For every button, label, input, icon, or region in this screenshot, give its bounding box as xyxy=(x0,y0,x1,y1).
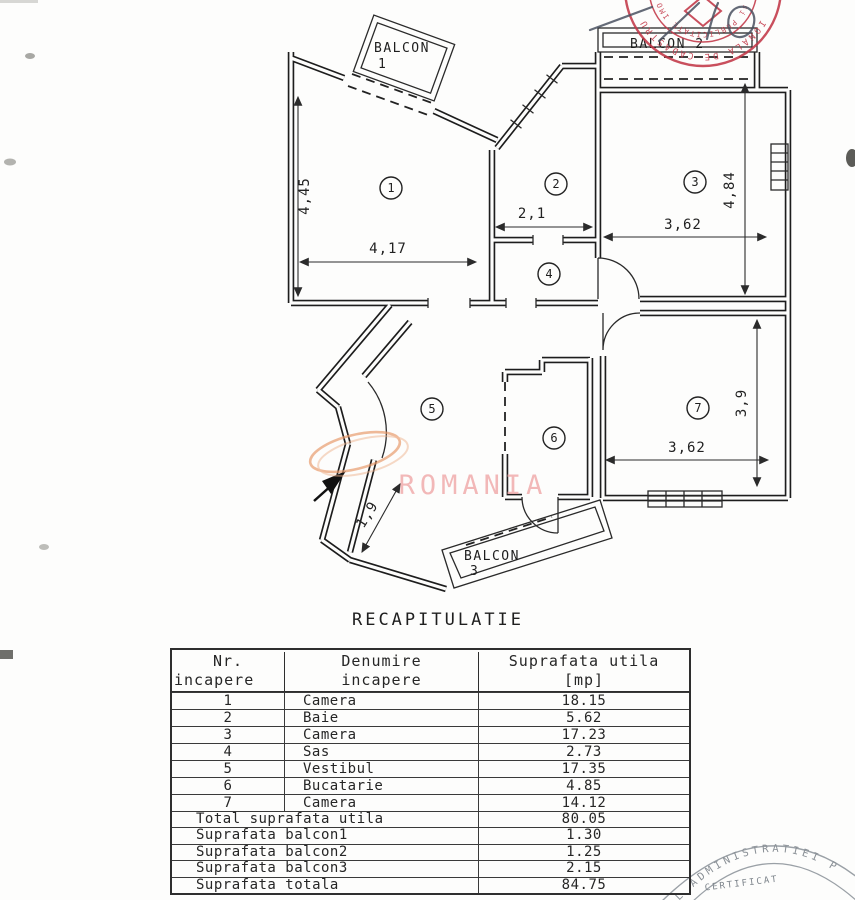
table-summary-row: Total suprafata utila 80.05 xyxy=(172,811,689,827)
door-jambs xyxy=(428,235,563,308)
dim-room7-width: 3,62 xyxy=(668,440,706,456)
room-4-number: 4 xyxy=(545,267,552,281)
balcony-1-number: 1 xyxy=(378,57,387,72)
recap-table: Nr. incapere Denumire incapere Suprafata… xyxy=(170,648,691,895)
room-2-number: 2 xyxy=(552,177,559,191)
dim-room1-width: 4,17 xyxy=(369,241,407,257)
room-1-number: 1 xyxy=(387,181,394,195)
room-7-number: 7 xyxy=(694,401,701,415)
scanned-floor-plan-document: 4,45 4,17 2,1 3,62 4,84 3,62 3,9 1,9 1 2… xyxy=(0,0,855,900)
table-summary-row: Suprafata totala 84.75 xyxy=(172,877,689,893)
dim-room2-width: 2,1 xyxy=(518,206,546,222)
dim-room1-height: 4,45 xyxy=(297,177,313,215)
table-summary-row: Suprafata balcon2 1.25 xyxy=(172,844,689,860)
stamp-emblem-icon xyxy=(685,0,721,26)
table-row: 7 Camera 14.12 xyxy=(172,794,689,811)
table-summary-row: Suprafata balcon1 1.30 xyxy=(172,827,689,843)
col-header-suprafata: Suprafata utila [mp] xyxy=(479,652,689,691)
col-header-denumire: Denumire incapere xyxy=(285,652,479,691)
table-row: 4 Sas 2.73 xyxy=(172,743,689,760)
table-summary-row: Suprafata balcon3 2.15 xyxy=(172,860,689,876)
room-6-number: 6 xyxy=(550,431,557,445)
table-row: 5 Vestibul 17.35 xyxy=(172,760,689,777)
dim-room3-height: 4,84 xyxy=(722,171,738,209)
room-5-number: 5 xyxy=(428,402,435,416)
room-3-number: 3 xyxy=(691,175,698,189)
table-row: 2 Baie 5.62 xyxy=(172,709,689,726)
balcony-3-label: BALCON xyxy=(464,549,520,564)
dim-room7-height: 3,9 xyxy=(734,389,750,417)
table-header: Nr. incapere Denumire incapere Suprafata… xyxy=(172,650,689,692)
balcony-3-number: 3 xyxy=(470,564,479,579)
certificate-line-text: CERTIFICAT xyxy=(704,875,779,894)
page-title: RECAPITULATIE xyxy=(288,610,588,630)
table-row: 6 Bucatarie 4.85 xyxy=(172,777,689,794)
balcony-1-outline xyxy=(353,15,454,101)
dim-corridor: 1,9 xyxy=(353,499,382,531)
col-header-nr: Nr. incapere xyxy=(172,652,285,691)
table-row: 3 Camera 17.23 xyxy=(172,726,689,743)
romania-watermark-text: ROMANIA xyxy=(399,470,548,501)
table-row: 1 Camera 18.15 xyxy=(172,692,689,709)
balcony-1-label: BALCON xyxy=(374,41,430,56)
dim-room3-width: 3,62 xyxy=(664,217,702,233)
